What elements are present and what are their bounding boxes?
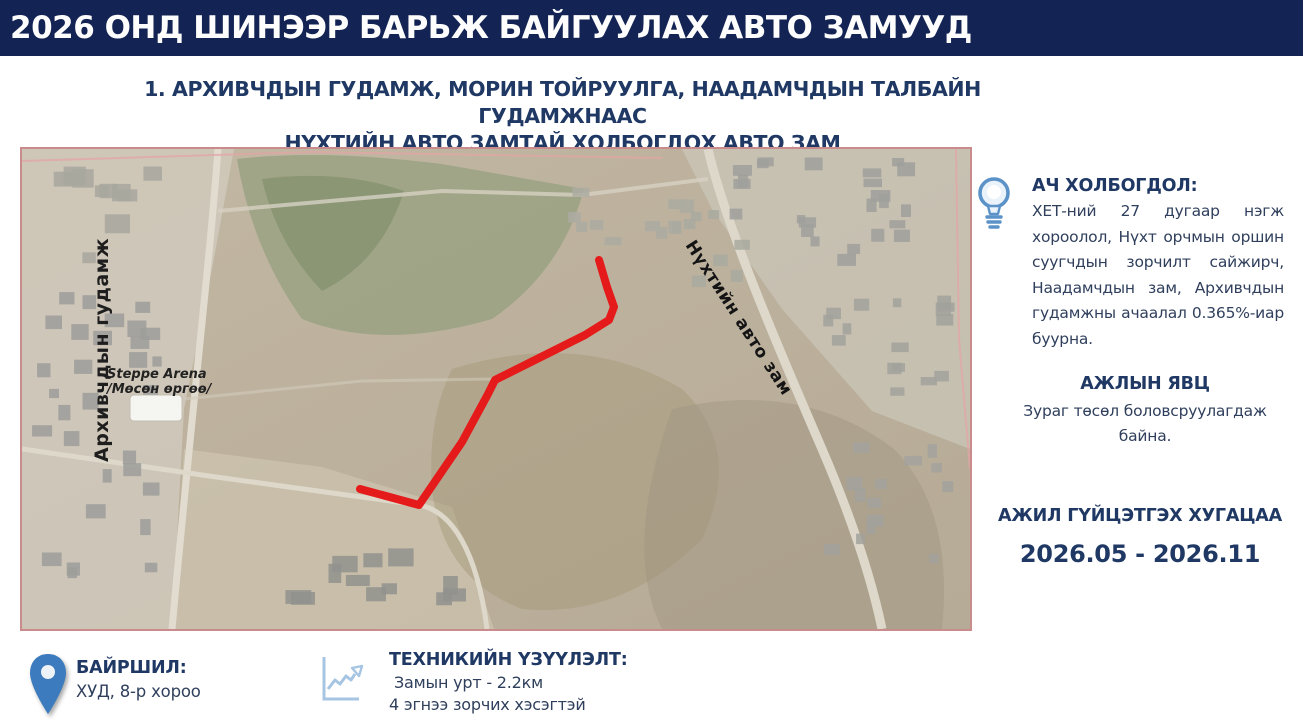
timeline-heading: АЖИЛ ГҮЙЦЭТГЭХ ХУГАЦАА	[988, 506, 1292, 526]
lightbulb-icon	[974, 176, 1014, 232]
map-label-street-left: Архивчдын гудамж	[91, 238, 113, 462]
significance-heading: АЧ ХОЛБОГДОЛ:	[1032, 176, 1197, 196]
location-pin-icon	[28, 652, 68, 718]
line-chart-icon	[317, 653, 367, 707]
satellite-map: Архивчдын гудамж Steppe Arena /Мөсөн өрг…	[20, 147, 972, 631]
specs-heading: ТЕХНИКИЙН ҮЗҮҮЛЭЛТ:	[389, 650, 628, 670]
timeline-value: 2026.05 - 2026.11	[988, 540, 1292, 568]
location-heading: БАЙРШИЛ:	[76, 658, 187, 678]
significance-body: ХЕТ-ний 27 дугаар нэгж хороолол, Нүхт ор…	[1032, 199, 1284, 352]
map-label-arena-line2: /Мөсөн өргөө/	[105, 382, 213, 397]
specs-length: Замын урт - 2.2км	[394, 673, 543, 692]
satellite-map-canvas: Архивчдын гудамж Steppe Arena /Мөсөн өрг…	[22, 149, 970, 629]
project-subtitle: 1. АРХИВЧДЫН ГУДАМЖ, МОРИН ТОЙРУУЛГА, НА…	[90, 76, 1035, 157]
map-label-arena-line1: Steppe Arena	[107, 367, 207, 382]
progress-body: Зураг төсөл боловсруулагдаж байна.	[1002, 399, 1288, 449]
header-bar: 2026 ОНД ШИНЭЭР БАРЬЖ БАЙГУУЛАХ АВТО ЗАМ…	[0, 0, 1303, 56]
progress-heading: АЖЛЫН ЯВЦ	[1000, 374, 1290, 394]
subtitle-line-1: 1. АРХИВЧДЫН ГУДАМЖ, МОРИН ТОЙРУУЛГА, НА…	[90, 76, 1035, 130]
location-value: ХУД, 8-р хороо	[76, 682, 201, 701]
page-title: 2026 ОНД ШИНЭЭР БАРЬЖ БАЙГУУЛАХ АВТО ЗАМ…	[0, 10, 972, 46]
specs-lanes: 4 эгнээ зорчих хэсэгтэй	[389, 695, 586, 714]
